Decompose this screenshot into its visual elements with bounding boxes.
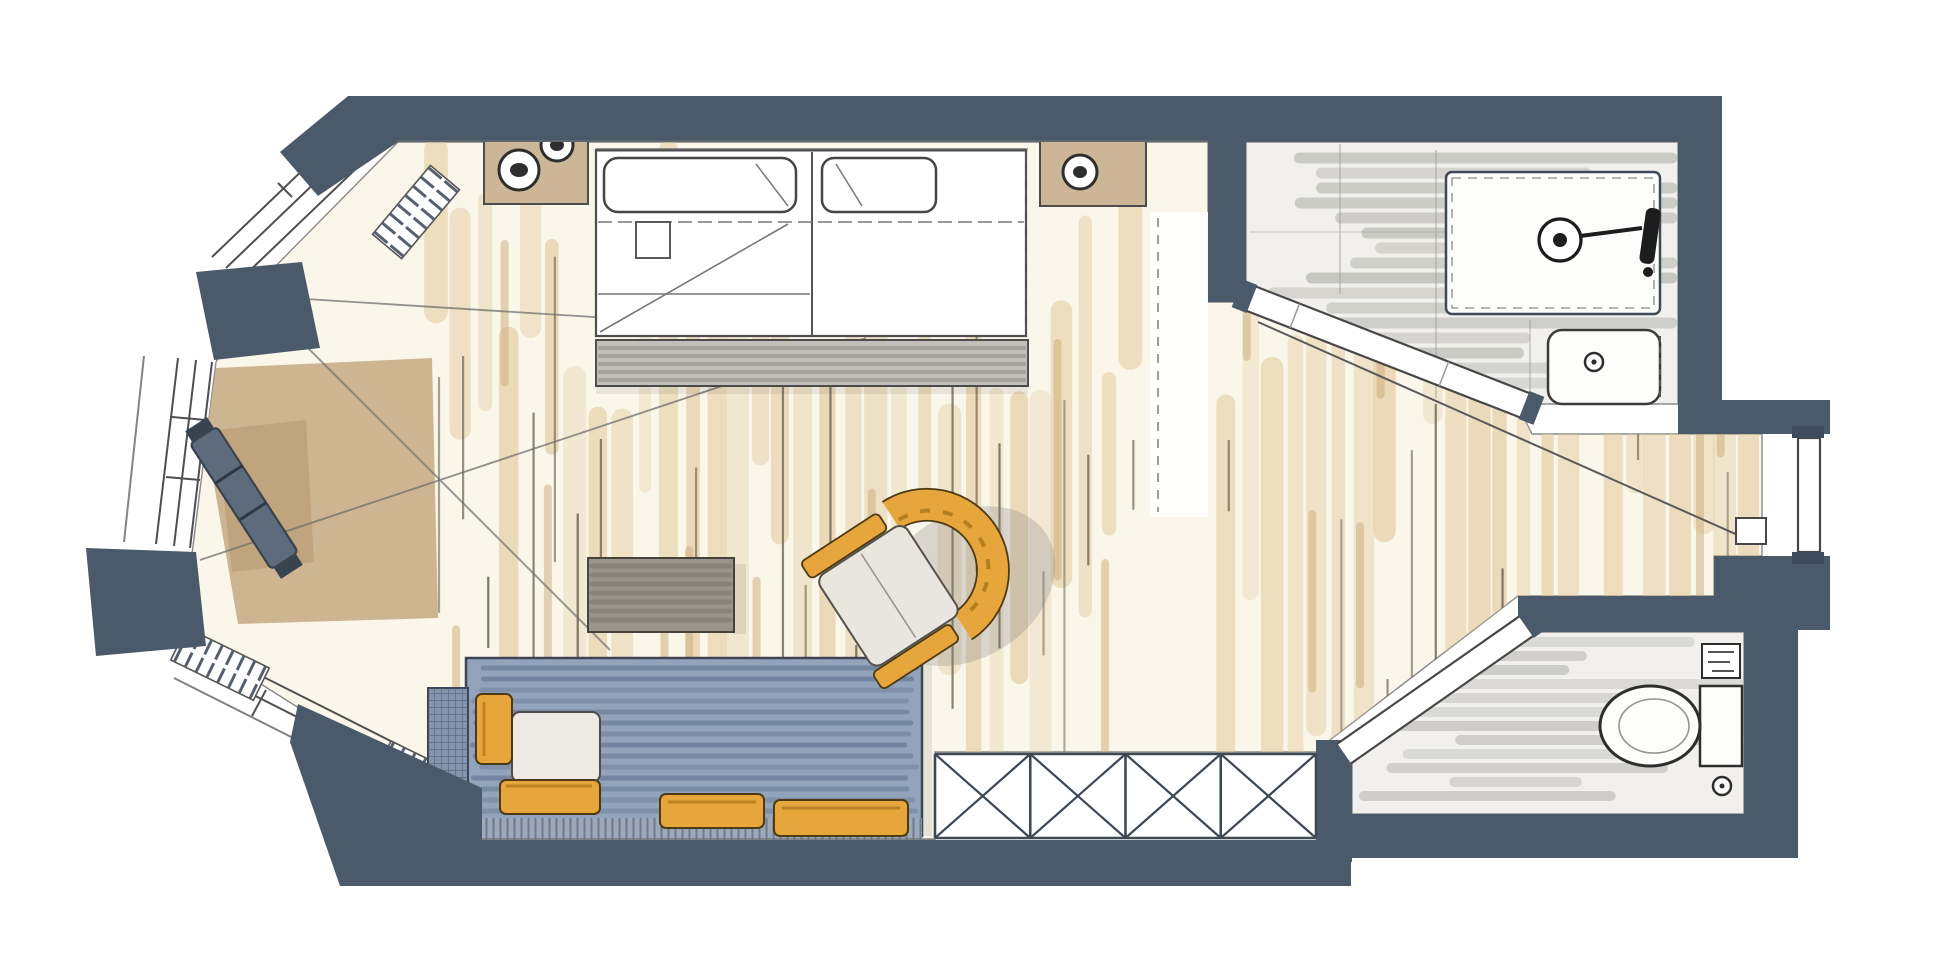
- wall-south: [460, 840, 1351, 886]
- wall-bay-upper-pier: [196, 262, 320, 360]
- pillow-right: [822, 158, 936, 212]
- double-bed: [596, 150, 1026, 338]
- nightstand-right: [1040, 136, 1146, 206]
- wall-bathroom-partition: [1208, 142, 1246, 302]
- floor-plan-drawing: [0, 0, 1950, 959]
- entrance-door-stop: [1736, 518, 1766, 544]
- toilet-cistern: [1700, 686, 1742, 766]
- balcony-x-railing: [935, 754, 1316, 838]
- wall-east: [1678, 142, 1722, 404]
- pillow-left: [604, 158, 796, 212]
- shower: [1446, 172, 1661, 314]
- washbasin: [1548, 330, 1660, 404]
- floor-plan-canvas: [0, 0, 1950, 959]
- side-table: [588, 558, 746, 634]
- folded-towel: [636, 222, 670, 258]
- daybed-sofa: [428, 658, 932, 844]
- bed-footboard-bench: [596, 340, 1028, 394]
- toilet-bowl: [1600, 686, 1700, 766]
- wall-bay-lower-pier: [86, 548, 206, 656]
- sofa-white-pillow: [512, 712, 600, 782]
- entrance-door-leaf: [1798, 438, 1820, 552]
